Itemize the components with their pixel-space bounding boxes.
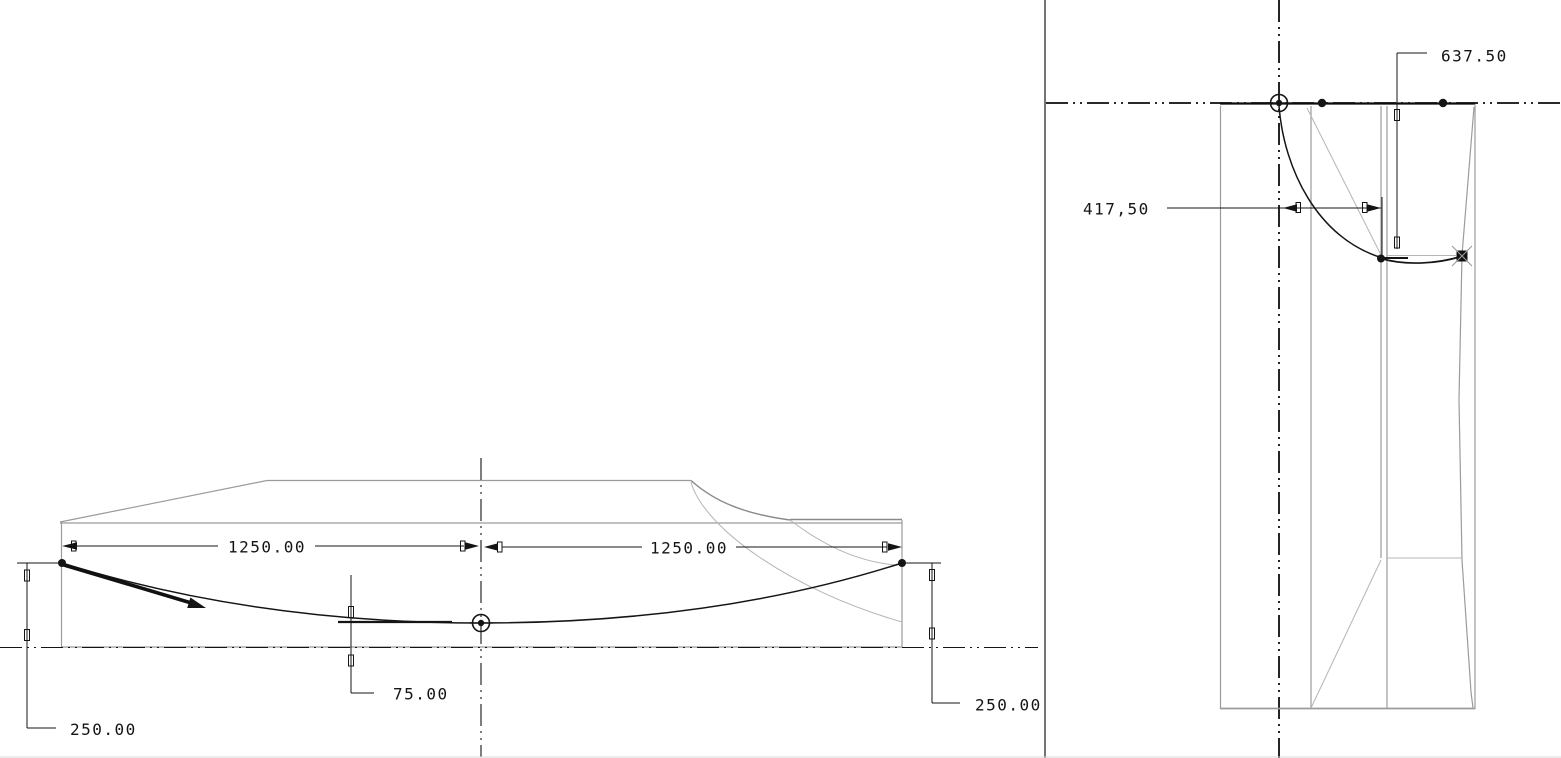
inner-diagonal-edge [1311,560,1381,708]
model-wireframe-end [1220,104,1475,709]
spline-left-half[interactable] [62,563,481,623]
tangent-handle-arrow-shaft[interactable] [64,565,193,604]
dim-value-horizontal-offset[interactable]: 417,50 [1083,200,1150,219]
dim-arrowhead [888,543,902,551]
hood-slope-edge [60,481,267,523]
dim-arrowhead [1283,204,1297,212]
rear-curve-edge [691,481,790,521]
dim-value-sag-depth[interactable]: 75.00 [393,685,449,704]
spline-right-half[interactable] [481,563,902,623]
dimension-sag-depth[interactable]: 75.00 [349,575,449,704]
centerline-point-2[interactable] [1439,99,1447,107]
drop-curve[interactable] [1279,106,1381,258]
dim-value-height-right[interactable]: 250.00 [975,696,1042,715]
left-viewport: 1250.00 1250.00 250.00 75.00 [0,458,1042,757]
dim-value-span-left[interactable]: 1250.00 [228,538,306,557]
cad-sketcher-canvas: 1250.00 1250.00 250.00 75.00 [0,0,1561,758]
dim-arrowhead [465,542,479,550]
dim-value-span-right[interactable]: 1250.00 [650,539,728,558]
dimension-span-left[interactable]: 1250.00 [62,538,479,557]
dim-arrowhead [1367,204,1381,212]
tangent-handle-arrowhead[interactable] [187,598,206,609]
dim-arrowhead [62,542,77,550]
dim-flip-box[interactable] [498,542,503,552]
drawing-area: 1250.00 1250.00 250.00 75.00 [0,0,1561,758]
slab-inner-right-edge [1459,107,1474,708]
dimension-horizontal-offset[interactable]: 417,50 [1083,197,1382,256]
dimension-height-left[interactable]: 250.00 [17,563,137,739]
right-viewport: 637.50 417,50 [1046,0,1561,758]
dim-value-height-left[interactable]: 250.00 [70,720,137,739]
surface-chord-edge [1307,108,1381,255]
dimension-vertical-extent[interactable]: 637.50 [1383,47,1508,259]
dim-arrowhead [484,543,498,551]
dimension-span-right[interactable]: 1250.00 [484,539,902,558]
centerline-point-1[interactable] [1318,99,1326,107]
dim-value-vertical-extent[interactable]: 637.50 [1441,47,1508,66]
rear-silhouette-curve-upper [790,520,898,565]
dimension-height-right[interactable]: 250.00 [902,563,1042,715]
sketch-spline-end[interactable] [1266,95,1472,267]
